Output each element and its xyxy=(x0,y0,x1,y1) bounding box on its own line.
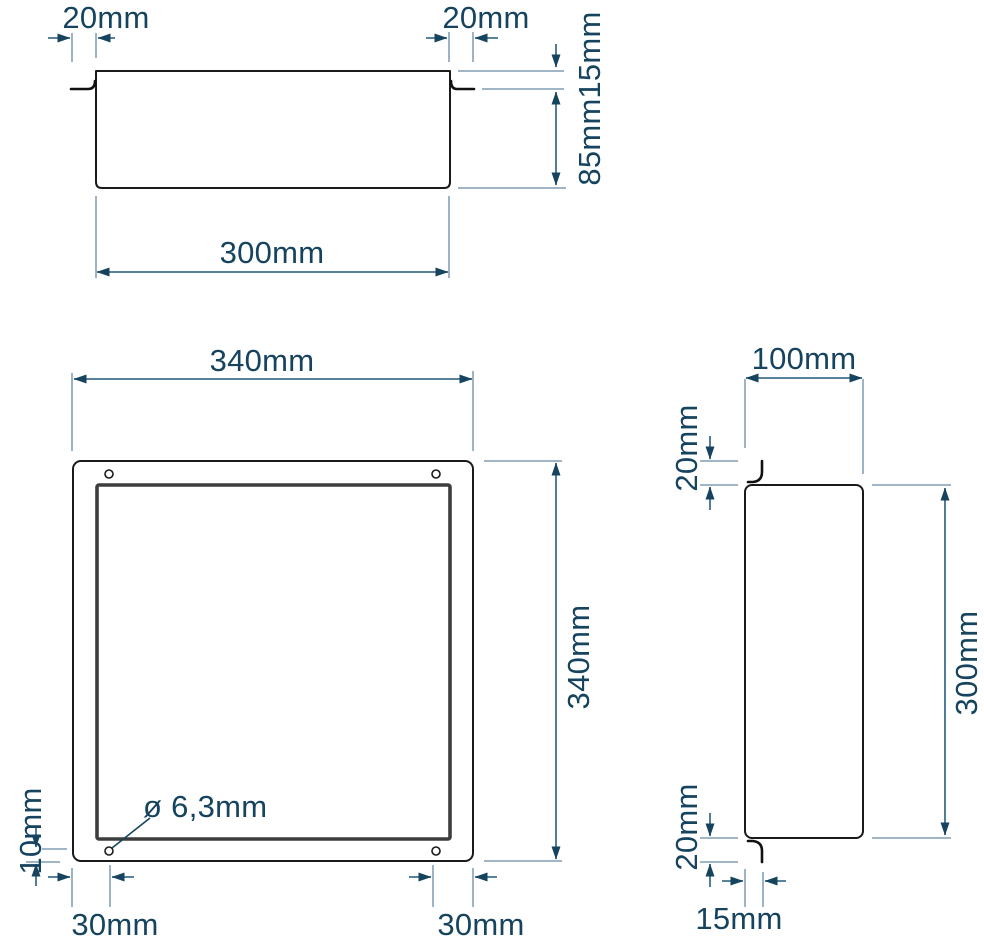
dim-overall-height-340mm: 340mm xyxy=(484,461,596,861)
dim-overall-width-340mm: 340mm xyxy=(72,343,473,451)
dim-hole-offset-left-30mm: 30mm xyxy=(48,865,159,942)
dim-body-height-300mm: 300mm xyxy=(872,485,984,838)
dim-opening-width-300mm: 300mm xyxy=(96,196,449,278)
dim-label: 340mm xyxy=(561,605,596,710)
hole-diameter-label: ø 6,3mm xyxy=(143,789,267,824)
dim-hole-offset-bottom-10mm: 10mm xyxy=(13,787,67,886)
side-view-flange-bottom xyxy=(748,841,762,862)
dim-label: 15mm xyxy=(572,11,607,98)
side-view-body-outline xyxy=(745,485,863,838)
dim-body-depth-100mm: 100mm xyxy=(745,341,863,474)
dim-label: 300mm xyxy=(949,611,984,716)
top-view: 20mm 20mm 15mm 85mm 300mm xyxy=(48,0,607,278)
side-view-flange-top xyxy=(748,461,762,482)
mounting-hole-bottom-left xyxy=(105,847,113,855)
dim-label: 100mm xyxy=(752,341,857,376)
dim-label: 15mm xyxy=(695,901,782,936)
dim-label: 20mm xyxy=(669,404,704,491)
mounting-hole-top-left xyxy=(105,470,113,478)
technical-drawing-page: 20mm 20mm 15mm 85mm 300mm xyxy=(0,0,984,942)
dim-flange-inset-15mm: 15mm xyxy=(695,869,786,936)
dim-label: 20mm xyxy=(62,0,149,35)
dim-label: 20mm xyxy=(669,783,704,870)
dim-label: 300mm xyxy=(220,235,325,270)
dim-flange-bottom-20mm: 20mm xyxy=(669,783,738,887)
top-view-flange-left xyxy=(71,81,95,89)
dim-label: 10mm xyxy=(13,787,48,874)
dim-flange-top-20mm: 20mm xyxy=(669,404,738,510)
side-view: 100mm 20mm 20mm 300mm 15mm xyxy=(669,341,984,936)
niche-technical-drawing: 20mm 20mm 15mm 85mm 300mm xyxy=(0,0,984,942)
top-view-body-outline xyxy=(96,71,450,188)
dim-label: 20mm xyxy=(442,0,529,35)
dim-label: 340mm xyxy=(210,343,315,378)
front-view: 340mm 340mm ø 6,3mm 30mm 30mm xyxy=(13,343,596,942)
dim-flange-right-20mm: 20mm xyxy=(426,0,530,62)
front-view-opening-frame xyxy=(97,485,450,839)
dim-label: 30mm xyxy=(437,907,524,942)
mounting-hole-top-right xyxy=(432,470,440,478)
dim-body-depth-85mm: 85mm xyxy=(458,92,607,188)
dim-label: 30mm xyxy=(71,907,158,942)
mounting-hole-bottom-right xyxy=(432,847,440,855)
dim-label: 85mm xyxy=(572,98,607,185)
dim-flange-left-20mm: 20mm xyxy=(48,0,150,62)
dim-hole-offset-right-30mm: 30mm xyxy=(409,865,525,942)
top-view-flange-right xyxy=(451,81,474,89)
